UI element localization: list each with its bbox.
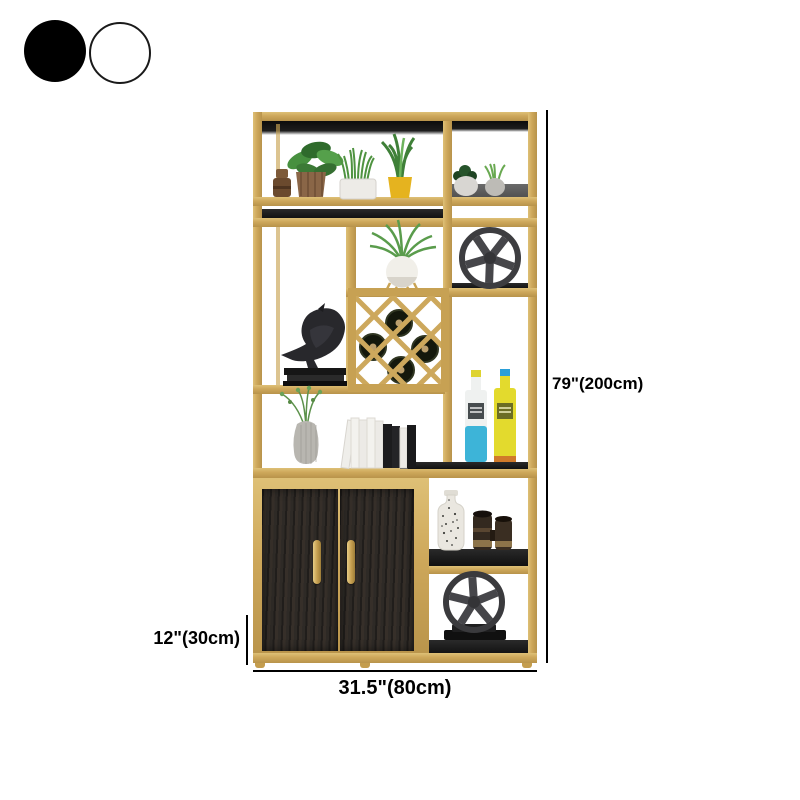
vase-with-sprigs <box>280 386 322 464</box>
book-row <box>341 418 416 469</box>
binoculars <box>473 511 512 551</box>
depth-dimension-label: 12"(30cm) <box>132 628 240 649</box>
metal-wheel <box>462 230 518 286</box>
foot <box>522 663 532 668</box>
frame-back-post <box>276 124 280 197</box>
frame-bar <box>253 112 537 121</box>
depth-dimension-line <box>246 615 248 665</box>
product-image: 79"(200cm) 12"(30cm) 31.5"(80cm) <box>0 0 800 800</box>
width-dimension-label: 31.5"(80cm) <box>295 677 495 700</box>
air-plant-on-stand <box>370 220 436 291</box>
height-dimension-line <box>546 110 548 663</box>
frame-back-post <box>276 222 280 385</box>
height-dimension-label: 79"(200cm) <box>552 374 643 394</box>
black-shelf <box>429 549 528 566</box>
frame-divider <box>346 227 356 390</box>
foot <box>255 663 265 668</box>
width-dimension-line <box>253 670 537 672</box>
frame-divider <box>443 121 452 478</box>
frame-shelf <box>253 218 537 227</box>
leafy-potted-plant <box>284 140 345 197</box>
wine-rack-with-bottles <box>352 207 445 463</box>
shelf-underside <box>452 121 528 132</box>
frame-shelf <box>253 385 445 394</box>
product-page: 79"(200cm) 12"(30cm) 31.5"(80cm) <box>0 0 800 800</box>
frame-shelf <box>429 566 528 574</box>
frame-shelf <box>253 197 537 206</box>
shelf-underside <box>262 121 443 135</box>
frame-post <box>528 112 537 663</box>
bird-statue <box>281 303 345 368</box>
foot <box>360 663 370 668</box>
speckled-vase <box>438 490 464 550</box>
liquor-bottles <box>465 369 516 462</box>
metal-wheel-on-stand <box>444 574 506 640</box>
door-handle-left[interactable] <box>313 540 321 584</box>
shelf-top <box>400 462 528 469</box>
frame-bar <box>253 653 537 663</box>
frame-shelf <box>253 468 537 478</box>
door-handle-right[interactable] <box>347 540 355 584</box>
frame-shelf <box>346 288 537 297</box>
book-stack <box>283 368 347 386</box>
cabinet-door-left[interactable] <box>262 489 338 651</box>
grass-potted-plant <box>338 148 376 199</box>
yellow-pot-spiky-plant <box>382 134 414 198</box>
